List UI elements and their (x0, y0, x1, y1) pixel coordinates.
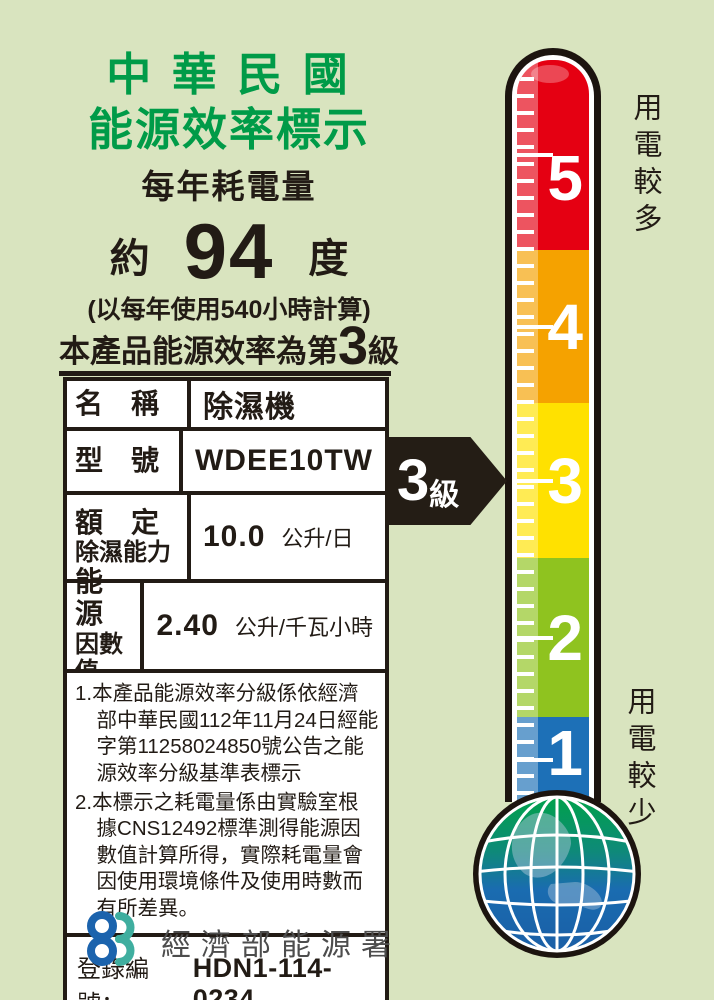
grade-statement-number: 3 (338, 324, 368, 370)
notes-text: 1.本產品能源效率分級係依經濟部中華民國112年11月24日經能字第112580… (67, 673, 385, 933)
tube-gloss (531, 65, 569, 83)
row-value-text: 10.0 (203, 520, 265, 554)
uses-more-power-label: 用電較多 (624, 92, 666, 240)
row-value-text: 除濕機 (203, 382, 296, 426)
grade-arrow: 3 級 (385, 437, 507, 525)
grade-2-number: 2 (547, 606, 583, 670)
row-label-text2: 除濕能力 (75, 539, 179, 567)
globe-icon (471, 788, 643, 965)
row-value-text: 2.40 (156, 609, 218, 643)
grade-statement-suffix: 級 (368, 333, 399, 370)
row-label-text: 額 定 (75, 507, 179, 539)
grade-arrow-suffix: 級 (429, 470, 459, 514)
table-row-model: 型 號 WDEE10TW (63, 427, 389, 495)
approx-text: 約 (110, 226, 150, 290)
row-value: WDEE10TW (183, 431, 385, 491)
energy-label: 中 華 民 國 能源效率標示 每年耗電量 約 94 度 (以每年使用540小時計… (0, 0, 714, 1000)
row-value-text: WDEE10TW (195, 444, 373, 478)
grade-arrow-number: 3 (397, 452, 429, 510)
row-value: 10.0 公升/日 (191, 495, 385, 579)
row-label: 型 號 (67, 431, 183, 491)
annual-consumption-heading: 每年耗電量 (55, 160, 403, 208)
row-label: 能 源 因數值 (67, 583, 144, 669)
agency-name: 經濟部能源署 (161, 920, 401, 964)
consumption-unit: 度 (308, 226, 348, 290)
thermometer-tube: 5 4 3 2 1 (505, 48, 601, 802)
label-left-column: 中 華 民 國 能源效率標示 每年耗電量 約 94 度 (以每年使用540小時計… (55, 0, 403, 1000)
thermometer-scale: 5 4 3 2 1 (517, 60, 589, 802)
row-label-text: 型 號 (75, 445, 171, 477)
agency-footer: 經濟部能源署 (83, 910, 401, 973)
grade-5-number: 5 (547, 146, 583, 210)
grade-statement-prefix: 本產品能源效率為第 (59, 333, 338, 370)
consumption-value: 94 (184, 212, 275, 290)
table-row-energy-factor: 能 源 因數值 2.40 公升/千瓦小時 (63, 579, 389, 673)
row-value-unit: 公升/日 (281, 521, 353, 553)
grade-3-number: 3 (547, 449, 583, 513)
label-title: 能源效率標示 (55, 93, 403, 158)
note-1: 1.本產品能源效率分級係依經濟部中華民國112年11月24日經能字第112580… (75, 681, 379, 788)
energy-administration-logo-icon (83, 910, 145, 973)
tube-tick-marks (517, 64, 534, 802)
row-value: 2.40 公升/千瓦小時 (144, 583, 385, 669)
grade-4-number: 4 (547, 295, 583, 359)
row-value-unit: 公升/千瓦小時 (235, 610, 373, 642)
grade-statement: 本產品能源效率為第 3 級 (59, 324, 391, 376)
consumption-row: 約 94 度 (55, 212, 403, 290)
row-label: 名 稱 (67, 381, 191, 427)
row-label-text: 能 源 (75, 566, 132, 630)
row-value: 除濕機 (191, 381, 385, 427)
row-label-text: 名 稱 (75, 388, 179, 420)
table-row-name: 名 稱 除濕機 (63, 377, 389, 431)
grade-1-number: 1 (547, 721, 583, 785)
note-2: 2.本標示之耗電量係由實驗室根據CNS12492標準測得能源因數值計算所得，實際… (75, 790, 379, 923)
